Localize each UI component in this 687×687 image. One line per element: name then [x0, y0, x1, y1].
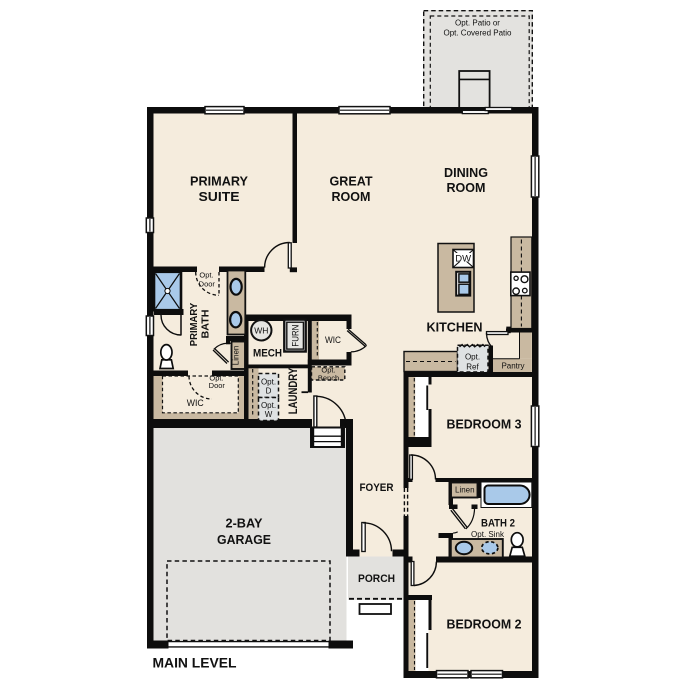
svg-text:WH: WH: [254, 325, 268, 335]
svg-text:MECH: MECH: [253, 348, 282, 360]
svg-text:WIC: WIC: [325, 335, 341, 345]
svg-text:Opt. Patio or: Opt. Patio or: [455, 19, 500, 28]
svg-text:FURN: FURN: [290, 324, 301, 346]
svg-text:BEDROOM 2: BEDROOM 2: [447, 617, 522, 632]
svg-text:Pantry: Pantry: [501, 361, 524, 370]
svg-text:FOYER: FOYER: [360, 482, 394, 494]
svg-text:BATH: BATH: [200, 310, 212, 339]
svg-text:Door: Door: [209, 381, 226, 390]
svg-text:Door: Door: [199, 280, 216, 289]
svg-text:W: W: [265, 410, 273, 419]
svg-text:2-BAY: 2-BAY: [226, 516, 263, 531]
svg-text:PORCH: PORCH: [358, 573, 395, 585]
svg-text:Opt. Sink: Opt. Sink: [471, 530, 505, 539]
svg-text:Linen: Linen: [455, 485, 475, 494]
svg-text:LAUNDRY: LAUNDRY: [288, 367, 300, 414]
svg-text:DW: DW: [455, 253, 471, 264]
svg-text:PRIMARY: PRIMARY: [190, 174, 248, 189]
svg-text:Opt.: Opt.: [261, 401, 276, 410]
svg-text:PRIMARY: PRIMARY: [188, 303, 200, 347]
svg-text:Opt. Covered Patio: Opt. Covered Patio: [443, 29, 512, 38]
svg-text:ROOM: ROOM: [447, 180, 486, 195]
svg-text:Bench: Bench: [318, 373, 339, 382]
svg-text:Opt.: Opt.: [465, 353, 480, 362]
svg-text:ROOM: ROOM: [332, 189, 371, 204]
svg-text:Ref: Ref: [466, 363, 479, 372]
svg-text:GREAT: GREAT: [330, 174, 373, 189]
svg-text:MAIN LEVEL: MAIN LEVEL: [153, 655, 237, 671]
svg-text:Opt.: Opt.: [261, 378, 276, 387]
svg-text:GARAGE: GARAGE: [217, 532, 271, 547]
svg-text:Opt.: Opt.: [199, 271, 213, 280]
svg-text:D: D: [266, 387, 272, 396]
svg-text:BATH 2: BATH 2: [481, 518, 515, 530]
svg-text:Linen: Linen: [232, 346, 241, 366]
svg-text:DINING: DINING: [444, 165, 488, 180]
svg-text:KITCHEN: KITCHEN: [427, 320, 483, 335]
svg-text:WIC: WIC: [187, 398, 204, 408]
svg-text:BEDROOM 3: BEDROOM 3: [447, 417, 522, 432]
svg-text:SUITE: SUITE: [199, 189, 240, 204]
